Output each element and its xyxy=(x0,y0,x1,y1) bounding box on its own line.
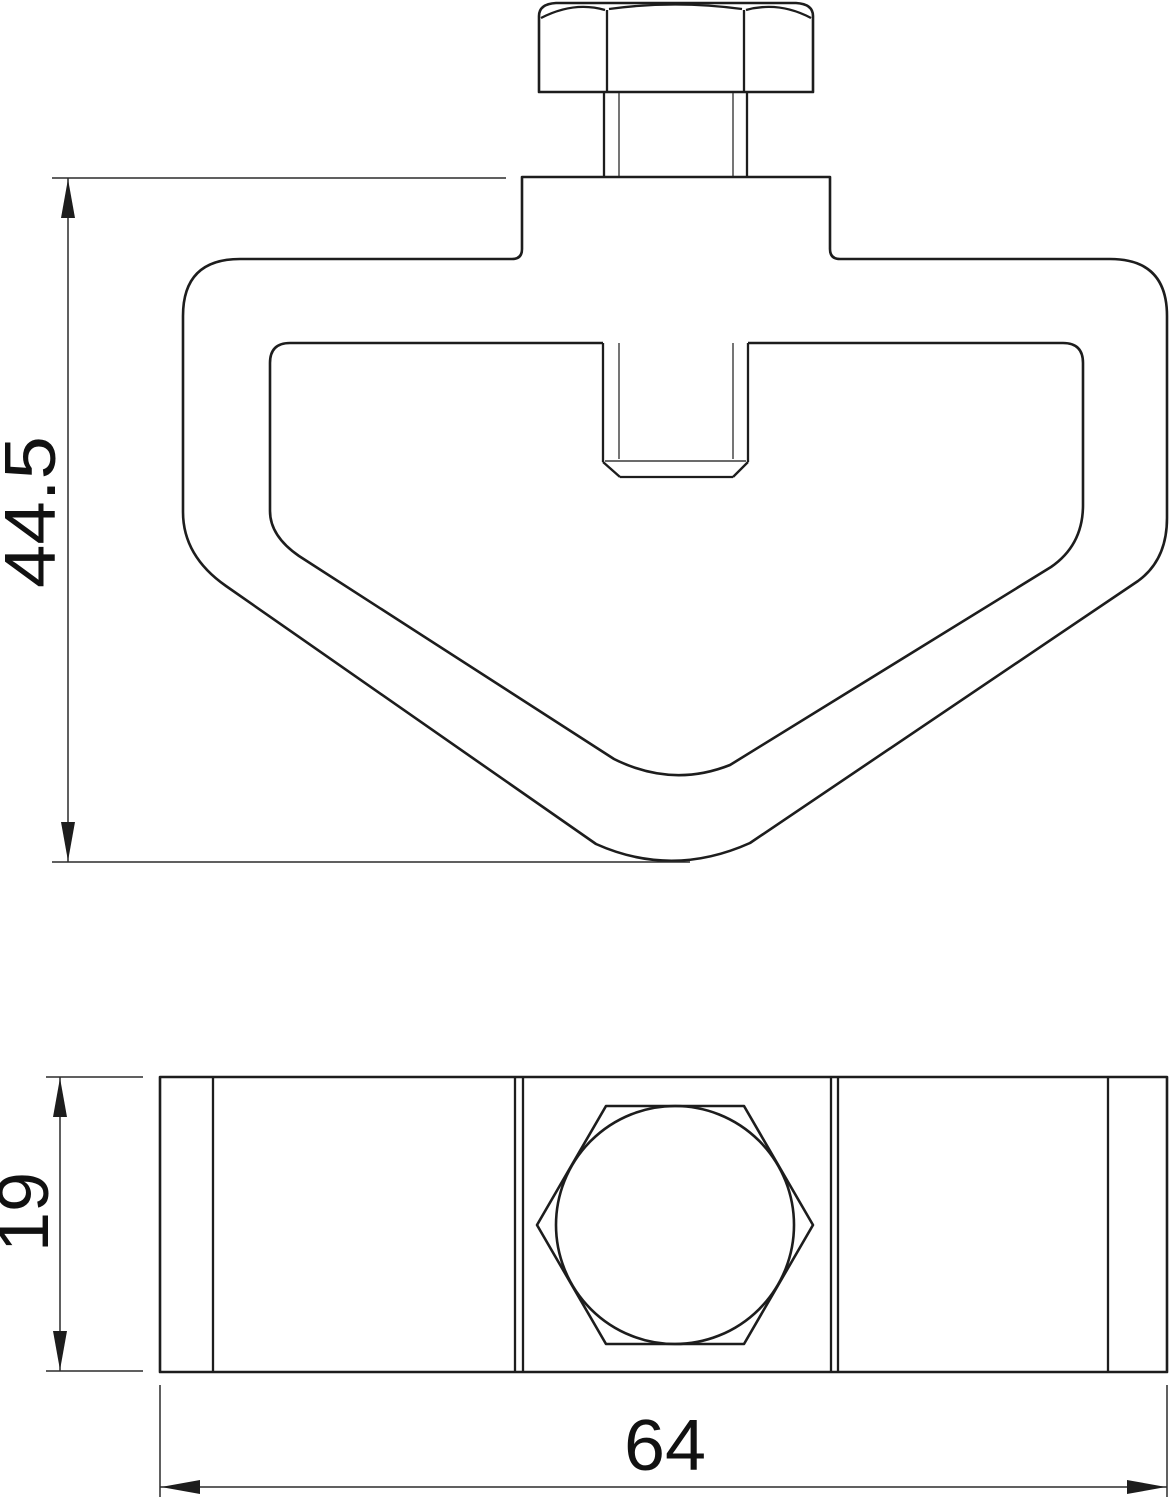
dimension-label-side-height: 19 xyxy=(0,1172,64,1252)
tab-projection-lines-right xyxy=(831,1077,838,1372)
shaft-tip-chamfer-left xyxy=(603,462,620,477)
bolt-head-chamfer-arc-middle xyxy=(609,5,742,10)
clamp-body-outline xyxy=(183,177,1167,861)
dimension-side-height: 19 xyxy=(0,1077,143,1371)
bolt-head-chamfer-arc-right xyxy=(746,7,811,18)
dimension-side-width: 64 xyxy=(160,1385,1167,1497)
bolt-shaft-upper xyxy=(604,93,747,177)
clamp-inner-cutout xyxy=(270,343,1083,775)
arrowhead-up-icon xyxy=(61,179,75,218)
technical-drawing-canvas: 44.5 1 xyxy=(0,0,1170,1500)
arrowhead-down-icon xyxy=(53,1331,67,1370)
dimension-front-height: 44.5 xyxy=(0,178,690,862)
dimension-label-side-width: 64 xyxy=(624,1406,706,1486)
hex-bolt-head-icon xyxy=(539,3,813,92)
body-rectangle xyxy=(160,1077,1167,1372)
arrowhead-right-icon xyxy=(1127,1480,1166,1494)
bolt-head-chamfer-arc-left xyxy=(541,7,605,18)
arrowhead-left-icon xyxy=(161,1480,200,1494)
arrowhead-up-icon xyxy=(53,1078,67,1117)
bolt-head-outline xyxy=(539,3,813,92)
drawing-svg: 44.5 1 xyxy=(0,0,1170,1500)
shaft-tip-chamfer-right xyxy=(733,462,748,477)
front-view: 44.5 xyxy=(0,3,1167,862)
bottom-view: 19 64 xyxy=(0,1077,1167,1497)
bolt-inscribed-circle xyxy=(556,1106,794,1344)
tab-projection-lines-left xyxy=(515,1077,523,1372)
hex-head-top-outline xyxy=(537,1106,813,1344)
bolt-shaft-lower xyxy=(603,343,748,477)
dimension-label-front-height: 44.5 xyxy=(0,436,71,588)
arrowhead-down-icon xyxy=(61,822,75,861)
